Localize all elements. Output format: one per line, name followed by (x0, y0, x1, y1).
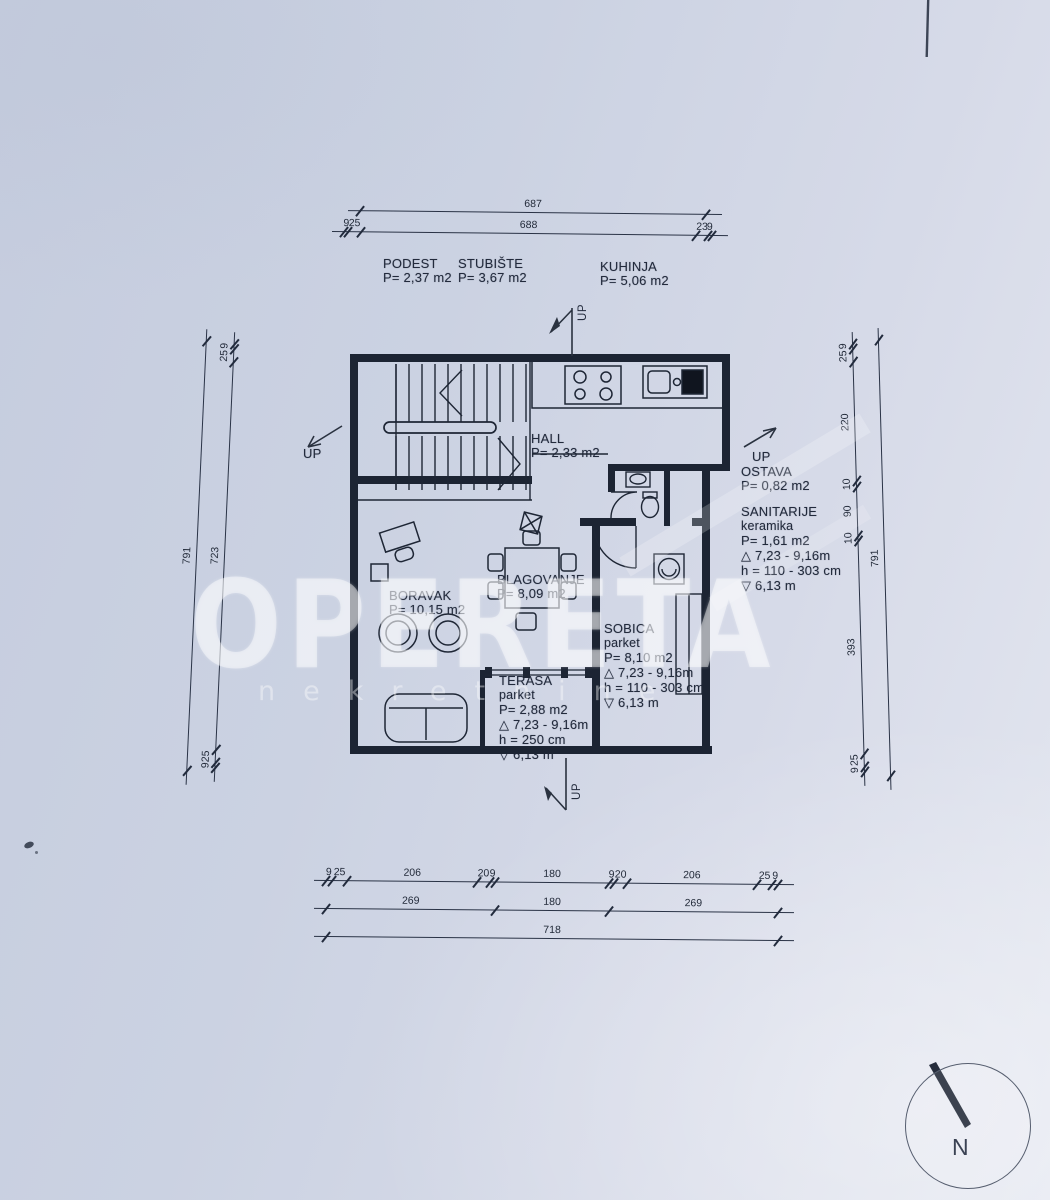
north-label: N (952, 1134, 969, 1161)
up-arrow-left (308, 426, 342, 447)
compass-circle (905, 1063, 1031, 1189)
up-arrow-bottom (546, 758, 566, 810)
up-arrow-right (744, 428, 776, 447)
annotations (0, 0, 1050, 1200)
floorplan-scan: 687 925688239 791 925723259 925220109010… (0, 0, 1050, 1200)
up-arrow-top (551, 308, 572, 356)
arrowhead (544, 786, 552, 801)
page-edge-line (926, 0, 930, 57)
paper-speck (35, 851, 38, 854)
arrowhead (549, 317, 560, 334)
